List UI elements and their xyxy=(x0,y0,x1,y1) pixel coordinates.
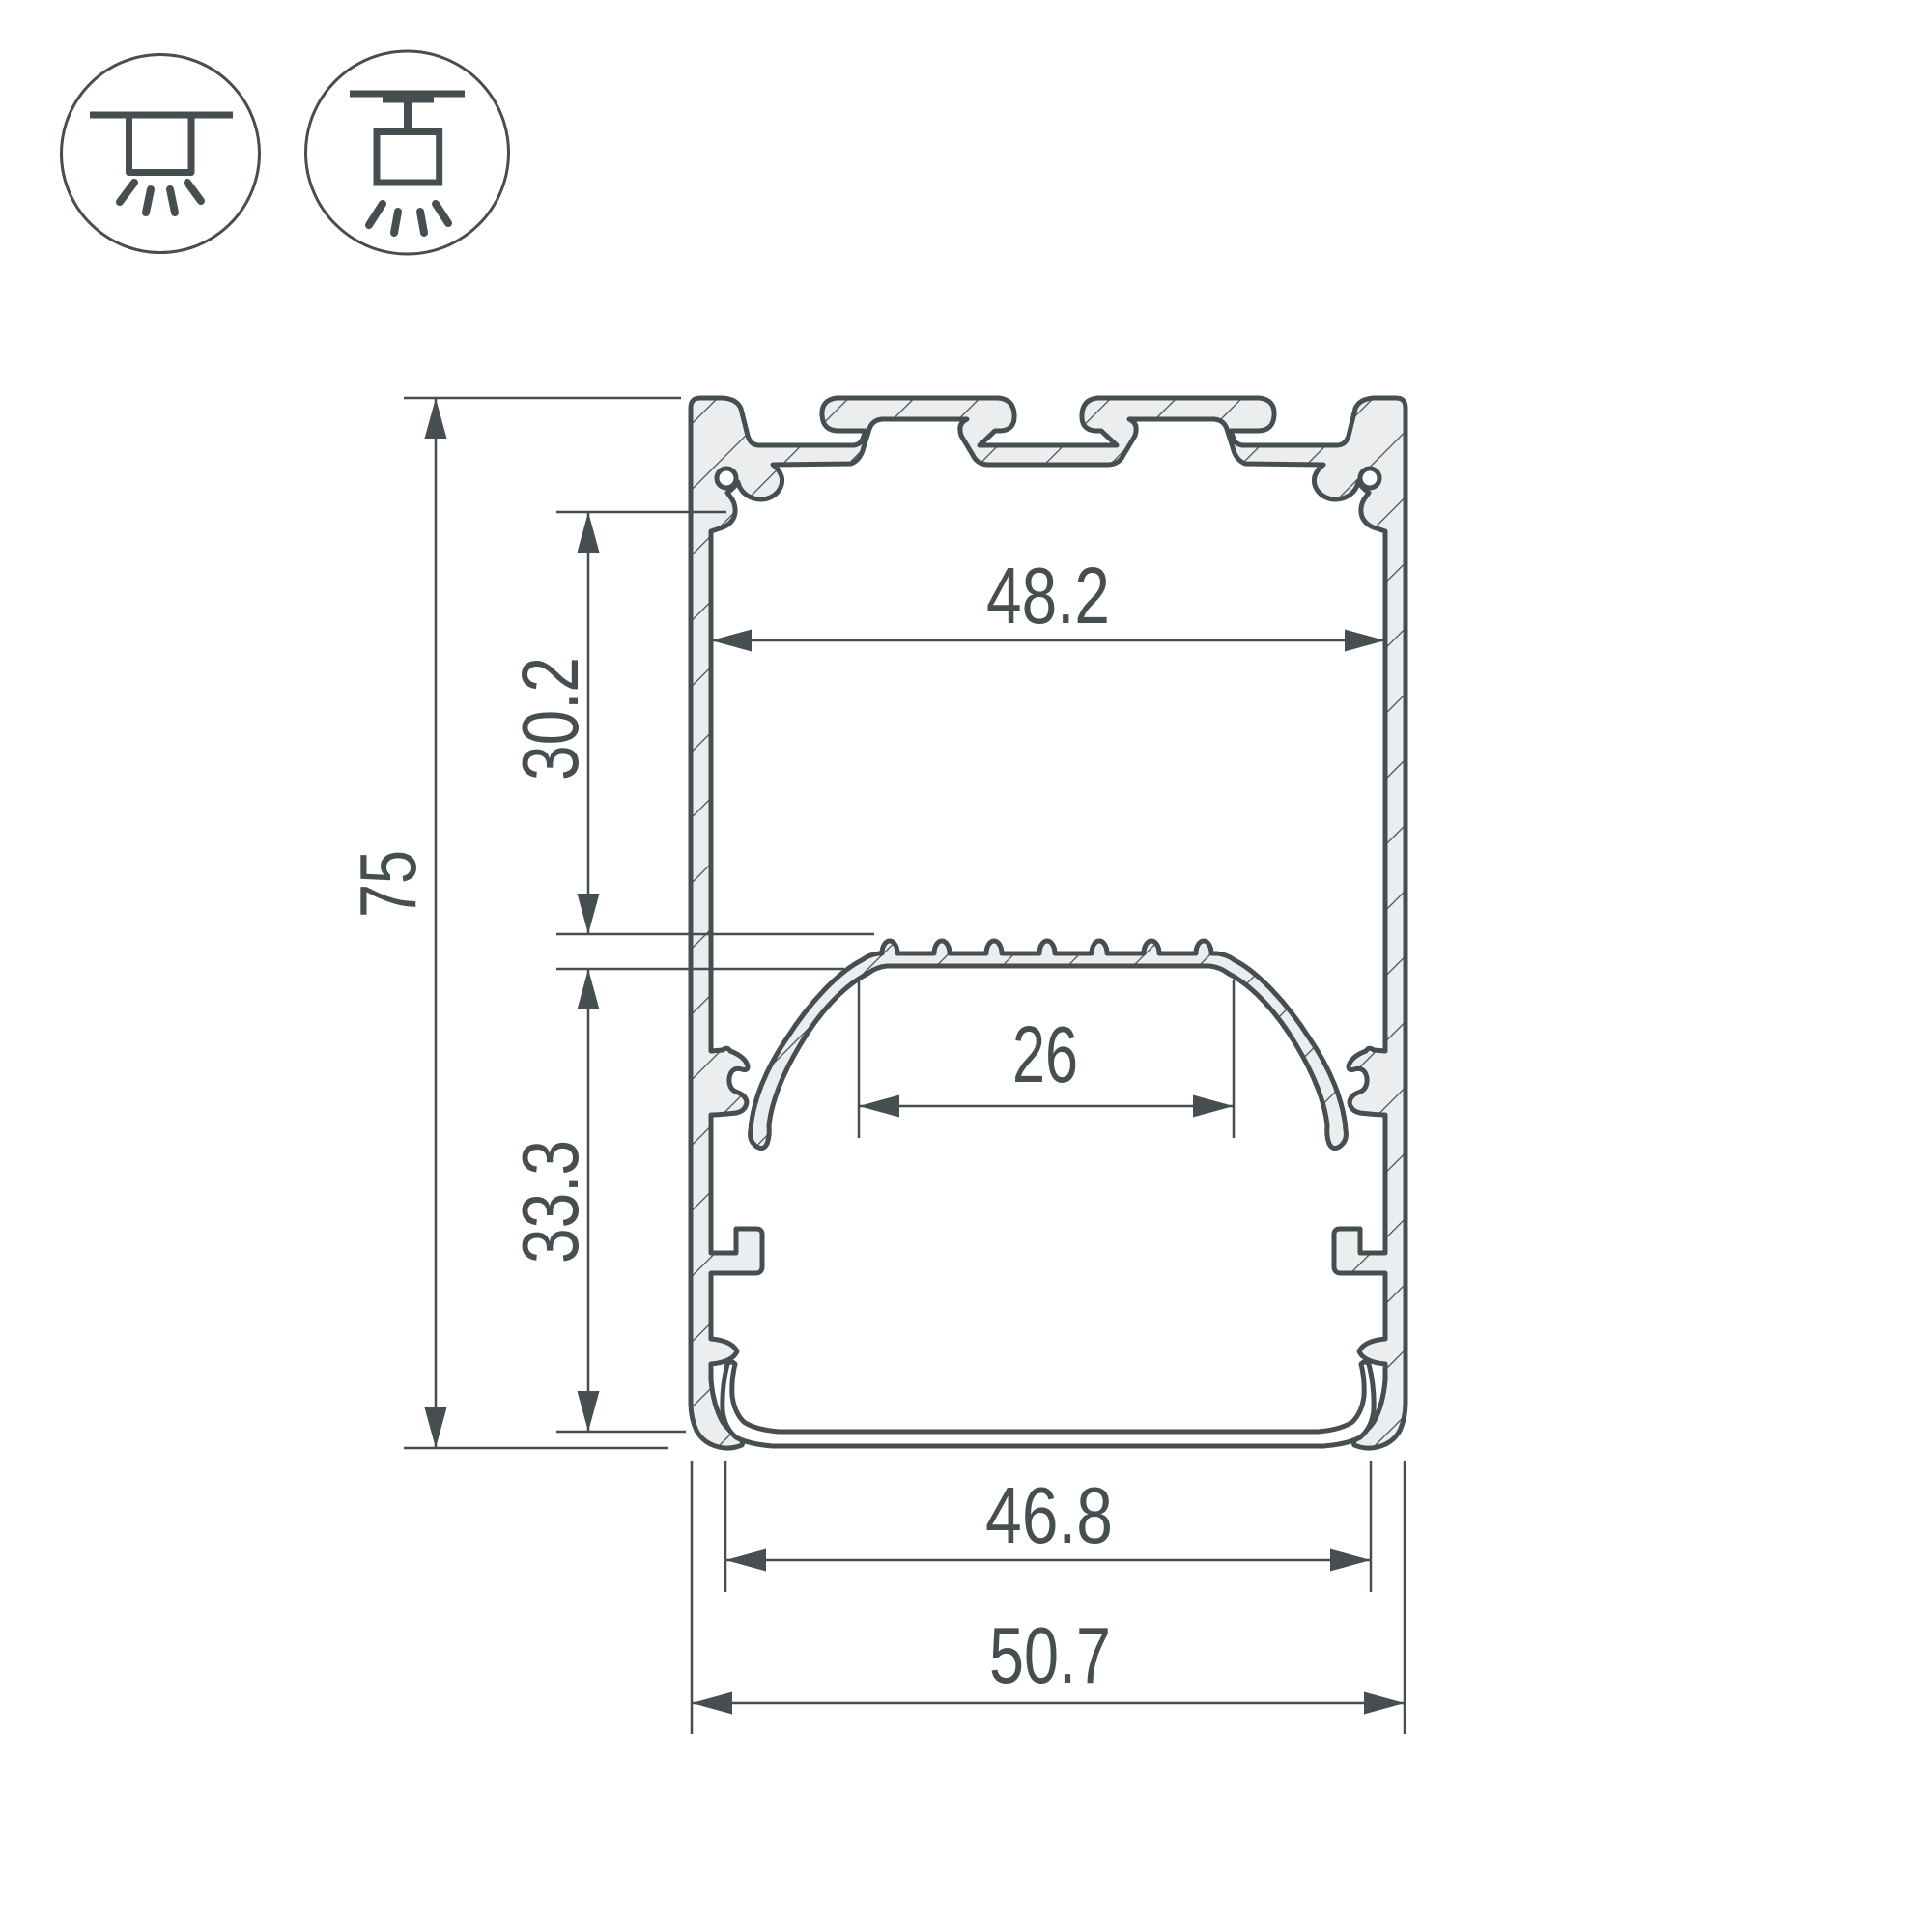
svg-text:30.2: 30.2 xyxy=(505,657,595,781)
svg-text:48.2: 48.2 xyxy=(986,551,1110,640)
svg-text:50.7: 50.7 xyxy=(989,1610,1111,1700)
svg-text:26: 26 xyxy=(1012,1009,1078,1099)
svg-text:46.8: 46.8 xyxy=(985,1470,1113,1560)
svg-text:75: 75 xyxy=(343,850,433,918)
svg-text:33.3: 33.3 xyxy=(505,1140,595,1264)
